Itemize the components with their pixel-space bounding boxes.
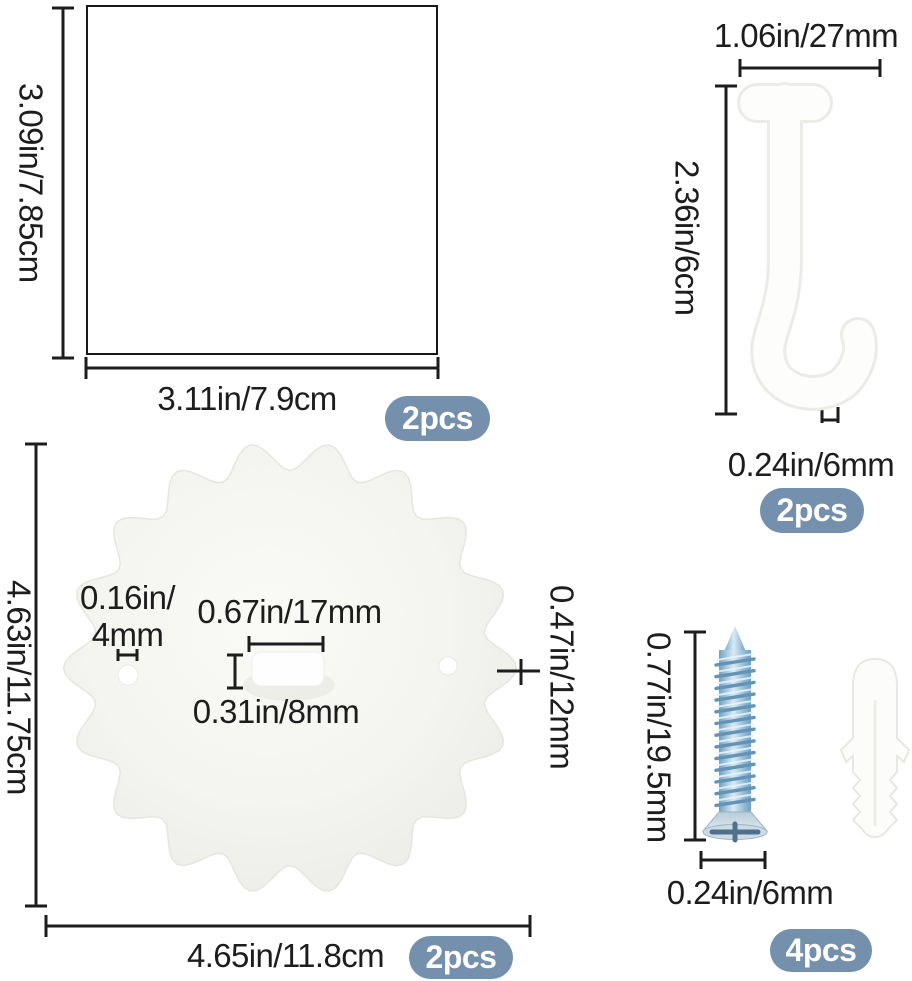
square-width-label: 3.11in/7.9cm (127, 381, 367, 417)
hook-count-badge: 2pcs (760, 488, 864, 533)
disc-center-slot (252, 652, 324, 686)
disc-width-label: 4.65in/11.8cm (163, 938, 408, 974)
slot-width-label: 0.67in/17mm (197, 594, 382, 630)
disc-edge-label: 0.47in/12mm (543, 582, 579, 772)
ceiling-hook (757, 100, 860, 393)
hook-width-bracket (740, 59, 880, 77)
screw-length-dim-line (684, 632, 706, 840)
wall-anchor (841, 659, 909, 837)
disc-hole-label: 0.16in/ 4mm (70, 580, 185, 654)
square-width-dim-line (86, 357, 438, 379)
hook-height-label: 2.36in/6cm (668, 145, 704, 330)
disc-hole-left (118, 665, 138, 685)
square-pad (86, 5, 438, 355)
screw-diameter-bracket (701, 851, 765, 869)
square-height-dim-line (52, 8, 74, 358)
disc-width-dim-line (46, 915, 530, 937)
hardware-count-badge: 4pcs (770, 929, 872, 972)
disc-height-label: 4.63in/11.75cm (0, 572, 36, 802)
screw-diameter-label: 0.24in/6mm (664, 875, 836, 911)
square-count-badge: 2pcs (385, 396, 490, 441)
screw-tip (723, 626, 747, 654)
disc-count-badge: 2pcs (409, 936, 513, 979)
square-height-label: 3.09in/7.85cm (12, 70, 48, 296)
product-dimension-diagram: 3.09in/7.85cm 3.11in/7.9cm 2pcs 1.06in/2… (0, 0, 912, 981)
hook-thickness-label: 0.24in/6mm (721, 447, 901, 483)
hook-height-dim-line (715, 86, 737, 414)
screw-length-label: 0.77in/19.5mm (640, 634, 676, 840)
hook-body (768, 100, 860, 393)
slot-height-label: 0.31in/8mm (190, 694, 362, 730)
hook-width-label: 1.06in/27mm (700, 18, 912, 54)
disc-hole-right (439, 657, 457, 675)
screw (703, 626, 767, 840)
